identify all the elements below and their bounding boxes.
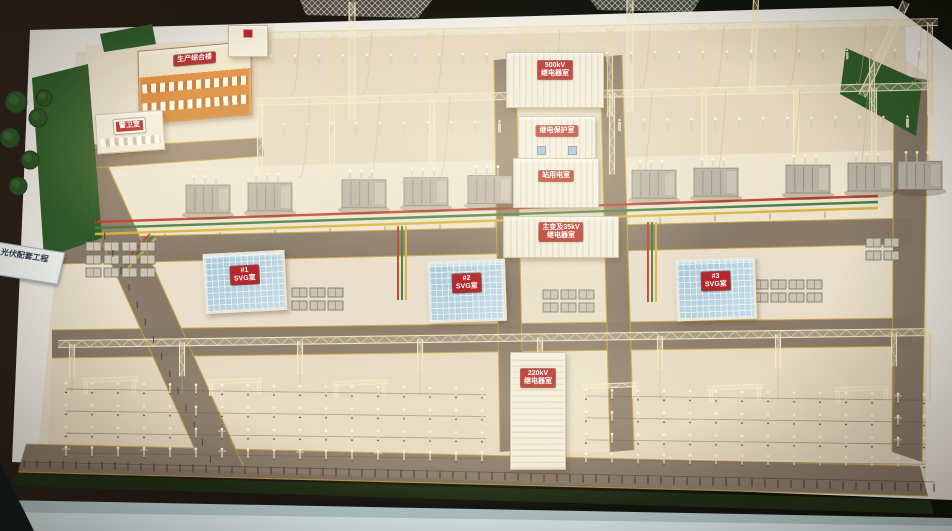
protection-room-building: 继电保护室 — [518, 116, 596, 160]
relay-500kv-building: 500kV 继电器室 — [506, 52, 604, 108]
main-transformer-relay-sign: 主变及35kV 继电器室 — [539, 223, 582, 241]
relay-220kv-building: 220kV 继电器室 — [510, 352, 566, 470]
guard-room: 警卫室 — [95, 110, 166, 155]
base-plate-text: 光伏配套工程 — [0, 248, 49, 264]
station-power-building: 站用电室 — [513, 158, 599, 208]
door-window — [537, 146, 546, 155]
gatehouse-sign — [243, 29, 253, 38]
gatehouse — [228, 25, 268, 57]
svg-room-2-sign: #2 SVG室 — [453, 274, 481, 293]
window-row — [100, 135, 160, 147]
substation-model-photo: 光伏配套工程 生产综合楼 警卫室 500kV 继电器室 继电保护室 站用电室 主… — [0, 0, 952, 531]
relay-220kv-sign: 220kV 继电器室 — [521, 369, 555, 387]
station-power-sign: 站用电室 — [539, 171, 573, 181]
protection-room-sign: 继电保护室 — [537, 126, 578, 136]
window-row — [142, 75, 248, 93]
svg-room-1-sign: #1 SVG室 — [230, 265, 259, 284]
admin-building-sign: 生产综合楼 — [174, 52, 215, 65]
guard-room-sign: 警卫室 — [114, 118, 146, 134]
svg-room-3-sign: #3 SVG室 — [702, 272, 730, 291]
main-transformer-relay-building: 主变及35kV 继电器室 — [503, 216, 619, 258]
relay-500kv-sign: 500kV 继电器室 — [538, 61, 572, 79]
door-window — [568, 146, 577, 155]
